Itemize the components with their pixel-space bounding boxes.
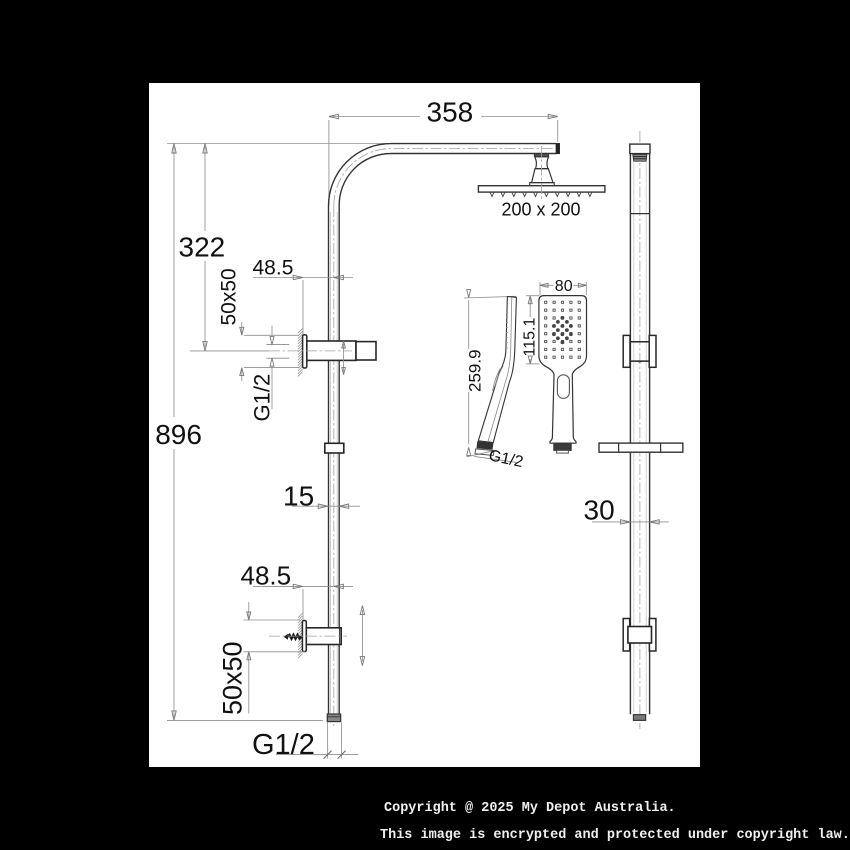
svg-text:This image is encrypted and pr: This image is encrypted and protected un…	[380, 828, 850, 843]
svg-text:30: 30	[584, 495, 615, 526]
svg-text:50x50: 50x50	[218, 268, 241, 325]
svg-text:80: 80	[555, 278, 573, 295]
svg-text:G1/2: G1/2	[250, 374, 275, 422]
svg-text:50x50: 50x50	[218, 641, 248, 715]
svg-text:Copyright @ 2025 My Depot Aust: Copyright @ 2025 My Depot Australia.	[384, 801, 676, 816]
svg-text:48.5: 48.5	[241, 561, 292, 591]
svg-text:259.9: 259.9	[466, 349, 485, 392]
svg-text:G1/2: G1/2	[252, 729, 315, 761]
svg-text:896: 896	[155, 419, 202, 450]
svg-text:115.1: 115.1	[522, 318, 539, 357]
svg-text:200 x 200: 200 x 200	[502, 200, 581, 220]
svg-text:15: 15	[283, 481, 314, 512]
svg-text:322: 322	[179, 232, 226, 263]
svg-text:358: 358	[427, 97, 474, 128]
svg-text:48.5: 48.5	[253, 257, 294, 280]
